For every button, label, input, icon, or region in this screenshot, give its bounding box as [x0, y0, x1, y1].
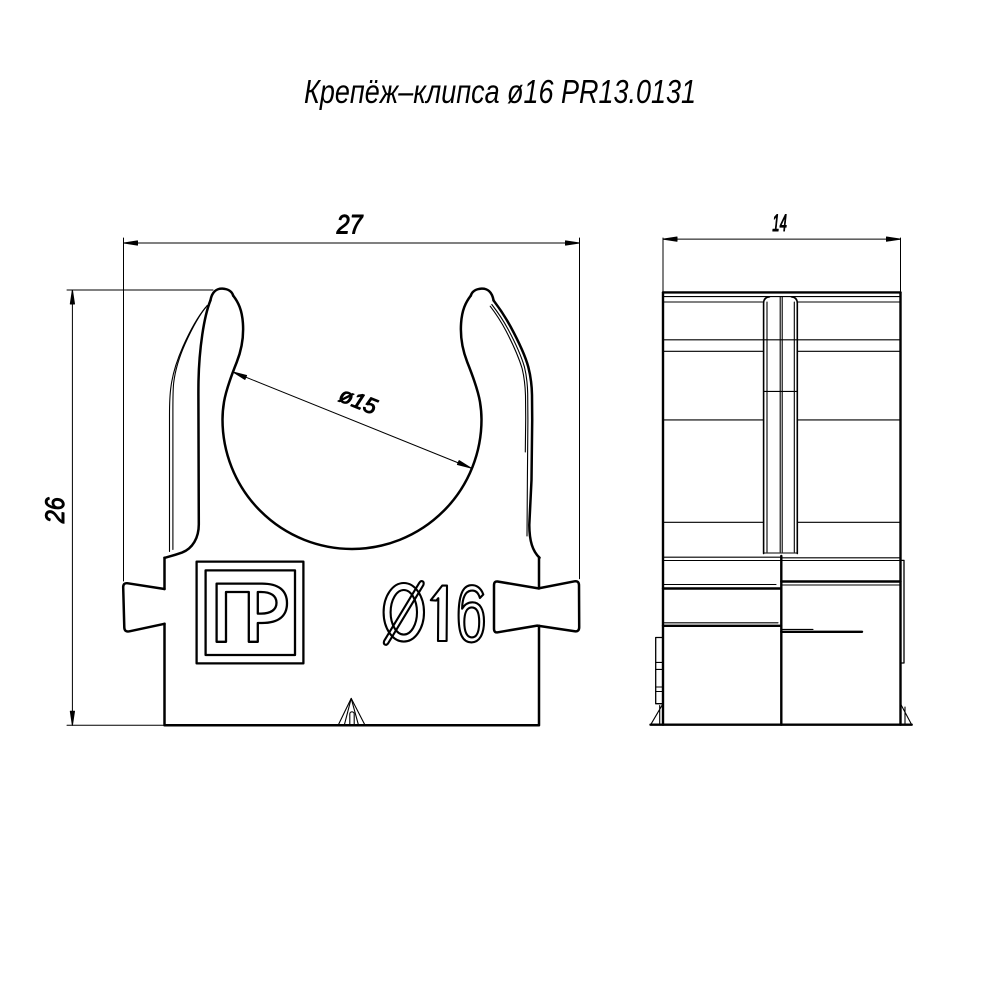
- svg-text:26: 26: [40, 496, 70, 524]
- svg-text:14: 14: [772, 210, 787, 237]
- svg-text:Крепёж–клипса ø16 PR13.0131: Крепёж–клипса ø16 PR13.0131: [304, 73, 696, 110]
- svg-text:27: 27: [336, 210, 364, 240]
